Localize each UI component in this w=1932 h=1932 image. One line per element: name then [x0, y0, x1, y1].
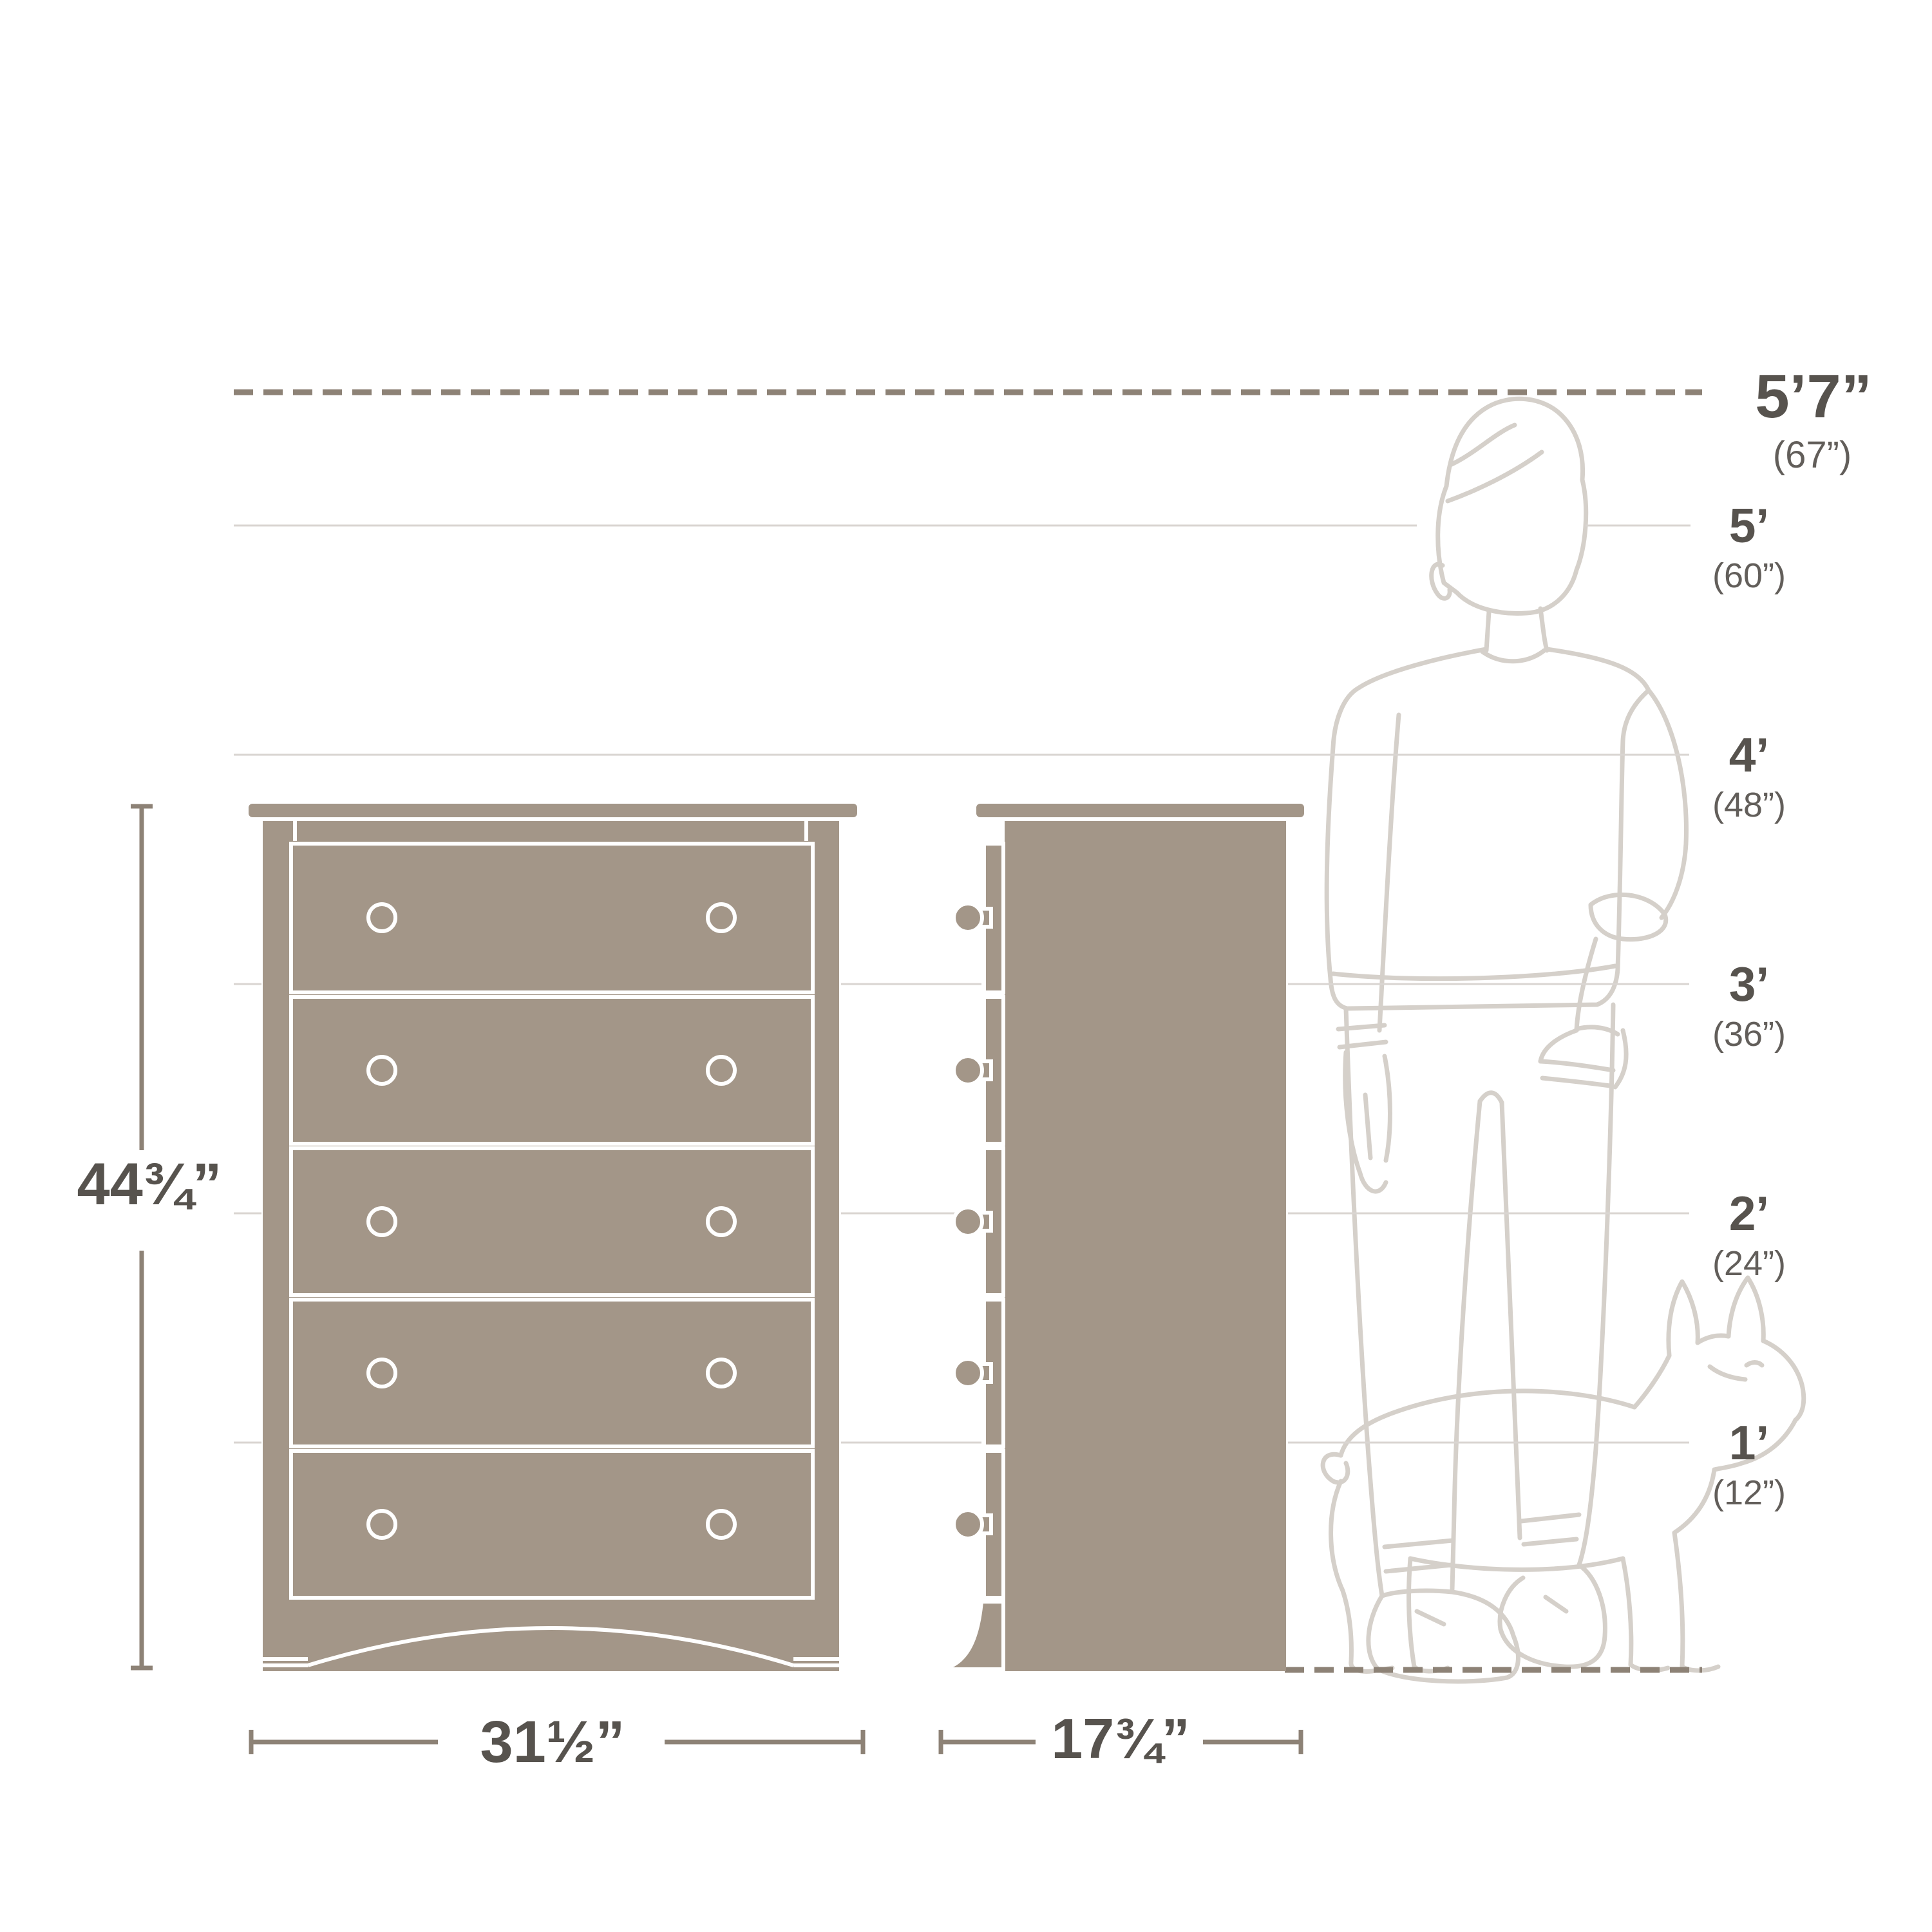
width-dimension-label: 31½”	[480, 1709, 625, 1775]
knob-side	[954, 1510, 982, 1539]
diagram-canvas: 44¾” 31½” 17¾” 5’7” (67”) 5’ (60”) 4’ (4…	[0, 0, 1932, 1932]
marker-4ft-inches: (48”)	[1712, 786, 1786, 824]
knob	[708, 1208, 735, 1235]
knob	[708, 1511, 735, 1538]
knob-side	[954, 1359, 982, 1387]
person-torso	[1327, 649, 1649, 1009]
knob-side	[954, 1207, 982, 1236]
depth-dimension: 17¾”	[941, 1707, 1301, 1770]
height-dimension-label: 44¾”	[77, 1151, 222, 1217]
marker-1ft-feet: 1’	[1729, 1416, 1770, 1470]
chest-front-top-molding	[247, 802, 859, 819]
knob	[708, 1057, 735, 1084]
knob	[368, 1511, 395, 1538]
knob	[708, 1359, 735, 1387]
height-marker-labels: 5’7” (67”) 5’ (60”) 4’ (48”) 3’ (36”) 2’…	[1712, 362, 1872, 1512]
chest-side-foot	[942, 1602, 1003, 1669]
marker-1ft-inches: (12”)	[1712, 1473, 1786, 1512]
knob	[368, 904, 395, 931]
marker-4ft-feet: 4’	[1729, 728, 1770, 782]
chest-front-view	[247, 802, 859, 1671]
marker-5ft-inches: (60”)	[1712, 556, 1786, 595]
knob	[368, 1057, 395, 1084]
knob	[368, 1208, 395, 1235]
marker-3ft-inches: (36”)	[1712, 1015, 1786, 1054]
marker-5ft-feet: 5’	[1729, 498, 1770, 553]
marker-3ft-feet: 3’	[1729, 957, 1770, 1011]
width-dimension: 31½”	[251, 1709, 863, 1775]
knob	[708, 904, 735, 931]
knob-side	[954, 904, 982, 932]
chest-side-body	[1005, 819, 1286, 1671]
person-right-shoe	[1500, 1565, 1605, 1667]
marker-2ft-inches: (24”)	[1712, 1244, 1786, 1283]
knob-side	[954, 1056, 982, 1084]
chest-side-top-molding	[974, 802, 1306, 819]
chest-front-drawers	[291, 844, 813, 1598]
person-head	[1438, 399, 1586, 613]
knob	[368, 1359, 395, 1387]
marker-5ft7-feet: 5’7”	[1755, 362, 1871, 431]
marker-2ft-feet: 2’	[1729, 1186, 1770, 1240]
person-silhouette-icon	[1327, 399, 1686, 1681]
marker-5ft7-inches: (67”)	[1773, 434, 1851, 476]
chest-side-view	[942, 802, 1306, 1671]
height-dimension: 44¾”	[77, 806, 222, 1668]
dimension-diagram: 44¾” 31½” 17¾” 5’7” (67”) 5’ (60”) 4’ (4…	[0, 0, 1932, 1932]
depth-dimension-label: 17¾”	[1051, 1707, 1189, 1770]
